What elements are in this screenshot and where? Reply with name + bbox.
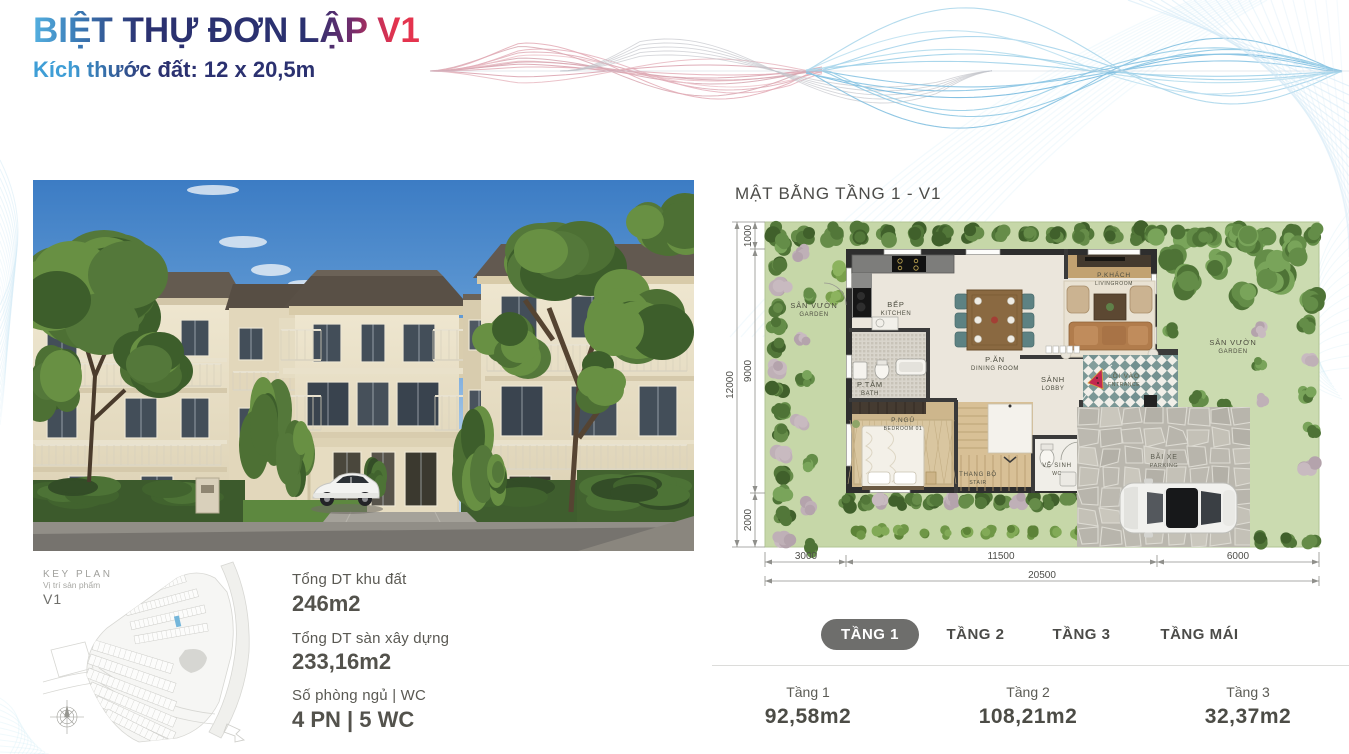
svg-text:LOBBY: LOBBY <box>1041 386 1064 392</box>
svg-text:BEDROOM 01: BEDROOM 01 <box>884 426 923 432</box>
svg-text:20500: 20500 <box>1028 570 1056 581</box>
svg-text:BẾP: BẾP <box>887 299 904 309</box>
svg-text:STAIR: STAIR <box>969 480 986 486</box>
svg-text:LIVINGROOM: LIVINGROOM <box>1095 281 1133 287</box>
svg-text:SÂN VƯỜN: SÂN VƯỜN <box>790 301 837 310</box>
svg-text:SẢNH: SẢNH <box>1041 375 1065 384</box>
svg-text:1000: 1000 <box>743 224 754 247</box>
svg-text:SÂN VƯỜN: SÂN VƯỜN <box>1209 338 1256 347</box>
svg-text:BATH: BATH <box>861 391 879 397</box>
svg-text:GARDEN: GARDEN <box>1218 349 1247 355</box>
svg-text:P.NGỦ: P.NGỦ <box>891 415 915 424</box>
svg-text:12000: 12000 <box>725 371 736 399</box>
svg-text:P.KHÁCH: P.KHÁCH <box>1097 270 1131 279</box>
svg-text:11500: 11500 <box>987 551 1015 562</box>
svg-text:P.ĂN: P.ĂN <box>985 355 1005 364</box>
svg-text:2000: 2000 <box>743 508 754 531</box>
svg-text:PARKING: PARKING <box>1150 463 1179 469</box>
svg-text:DINING ROOM: DINING ROOM <box>971 366 1019 372</box>
svg-text:KITCHEN: KITCHEN <box>881 311 912 317</box>
svg-text:THANG BỘ: THANG BỘ <box>959 471 997 478</box>
svg-text:3000: 3000 <box>795 551 818 562</box>
svg-text:6000: 6000 <box>1227 551 1250 562</box>
svg-text:WC: WC <box>1052 471 1062 477</box>
svg-text:BÃI XE: BÃI XE <box>1150 452 1177 461</box>
svg-text:VỆ SINH: VỆ SINH <box>1042 461 1072 469</box>
svg-text:GARDEN: GARDEN <box>799 312 828 318</box>
svg-text:ENTRANCE: ENTRANCE <box>1108 382 1140 388</box>
svg-text:9000: 9000 <box>743 359 754 382</box>
svg-text:P.TẮM: P.TẮM <box>857 380 883 389</box>
